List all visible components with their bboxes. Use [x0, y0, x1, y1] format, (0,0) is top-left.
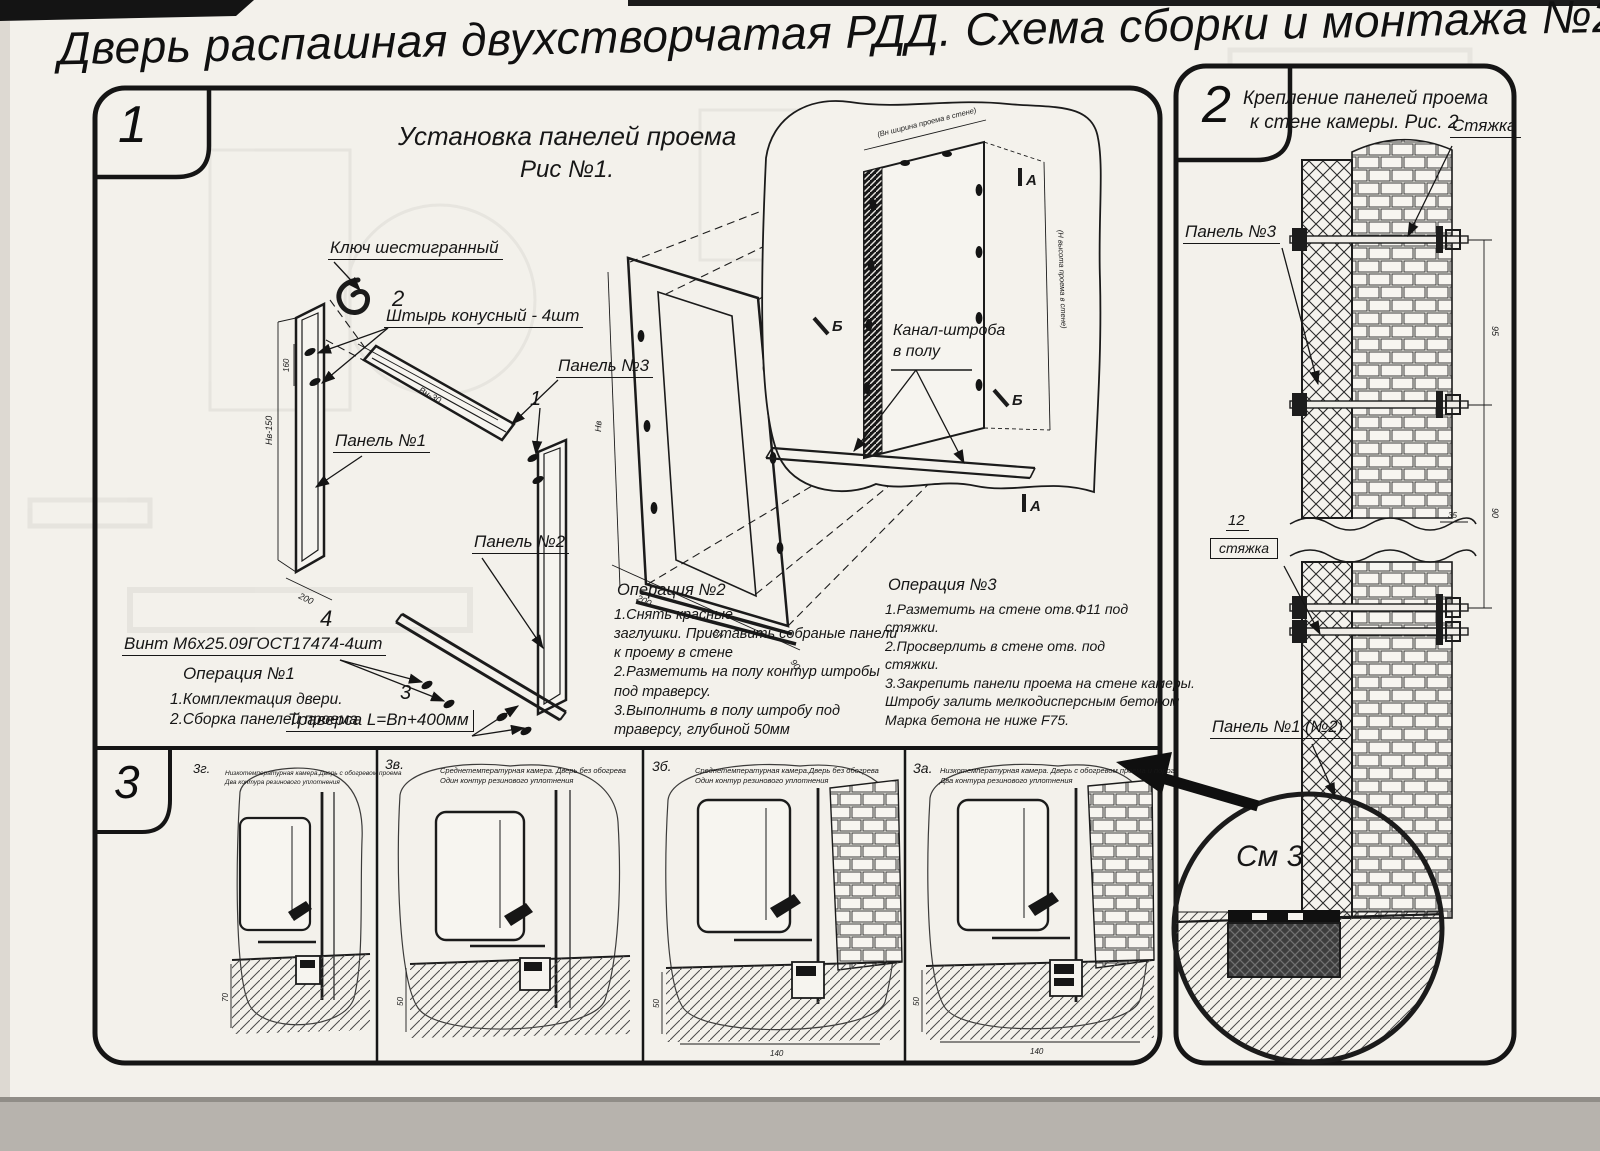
section-3g-id: 3г.	[193, 762, 210, 777]
svg-text:35: 35	[1448, 511, 1457, 520]
section-3b-drawing	[662, 764, 902, 1044]
figure2-badge: 2	[1202, 76, 1231, 136]
svg-text:160: 160	[282, 358, 291, 372]
section-3a-id: 3а.	[913, 760, 932, 776]
wall-mount-section	[1174, 140, 1492, 1062]
svg-text:140: 140	[770, 1049, 784, 1058]
operation1-title: Операция №1	[183, 664, 295, 684]
panel1-2-label: Панель №1 (№2)	[1210, 718, 1347, 739]
section-3a-drawing	[922, 764, 1154, 1042]
svg-text:95: 95	[1490, 326, 1500, 337]
svg-text:140: 140	[1030, 1047, 1044, 1056]
figure1-caption-line1: Установка панелей проема	[398, 122, 736, 152]
see-detail-label: См 3	[1236, 840, 1303, 875]
operation3-text: 1.Разметить на стене отв.Ф11 под стяжки.…	[885, 600, 1195, 729]
operation2-title: Операция №2	[617, 581, 726, 600]
figure1-badge: 1	[118, 96, 147, 156]
section-3v-drawing	[398, 764, 630, 1038]
section-3b-caption: Среднетемпературная камера.Дверь без обо…	[695, 766, 879, 786]
tie-rod-label: Стяжка	[1450, 116, 1521, 138]
svg-text:90: 90	[1490, 508, 1500, 518]
section-marker-a2: А	[1029, 498, 1041, 515]
screw-callout-number: 4	[320, 606, 332, 631]
section-3v-id: 3в.	[385, 756, 404, 772]
figure3-badge: 3	[114, 756, 140, 809]
tie12-label: стяжка	[1210, 538, 1278, 559]
panel1-label: Панель №1	[333, 431, 430, 453]
section-3g-drawing	[231, 768, 370, 1034]
scanned-assembly-drawing: Б Б А А Нв-150 200 Вн-30 160 Нв 200 Вн 9…	[0, 0, 1600, 1151]
section-marker-b2: Б	[1012, 392, 1023, 409]
section-3v-caption: Среднетемпературная камера. Дверь без об…	[440, 766, 626, 786]
section-marker-a1: А	[1025, 172, 1037, 189]
operation2-text: 1.Снять красные заглушки. Приставить соб…	[614, 606, 897, 740]
traverse-callout-number: 3	[400, 682, 411, 705]
figure1-caption-line2: Рис №1.	[520, 156, 614, 184]
traverse-label: Траверса L=Bn+400мм	[286, 710, 474, 732]
panel2-label: Панель №2	[472, 532, 569, 554]
figure2-caption-line1: Крепление панелей проема	[1243, 88, 1488, 110]
svg-text:Нв-150: Нв-150	[264, 416, 274, 445]
cone-pin-label: Штырь конусный - 4шт	[384, 306, 583, 328]
svg-text:50: 50	[652, 999, 661, 1008]
floor-channel-label: Канал-штроба в полу	[893, 320, 1005, 362]
svg-text:50: 50	[396, 997, 405, 1006]
threshold-sections	[231, 764, 1154, 1044]
panel3-label: Панель №3	[556, 356, 653, 378]
operation3-title: Операция №3	[888, 576, 997, 595]
svg-text:70: 70	[221, 993, 230, 1002]
hex-key-label: Ключ шестигранный	[328, 238, 503, 260]
callout-number-1: 1	[530, 388, 541, 411]
figure2-caption-line2: к стене камеры. Рис. 2	[1250, 112, 1459, 134]
svg-text:50: 50	[912, 997, 921, 1006]
section-3g-caption: Низкотемпературная камера.Дверь с обогре…	[225, 770, 401, 787]
section-3b-id: 3б.	[652, 758, 672, 774]
hex-key-icon	[339, 280, 368, 312]
section-3a-caption: Низкотемпературная камера. Дверь с обогр…	[940, 766, 1178, 786]
figure2-panel3-label: Панель №3	[1183, 222, 1280, 244]
screw-label: Винт М6х25.09ГОСТ17474-4шт	[122, 634, 386, 656]
drawing-line-art: Б Б А А Нв-150 200 Вн-30 160 Нв 200 Вн 9…	[0, 0, 1600, 1151]
svg-text:Нв: Нв	[593, 420, 603, 432]
section-marker-b1: Б	[832, 318, 843, 335]
tie12-callout-number: 12	[1226, 512, 1249, 531]
